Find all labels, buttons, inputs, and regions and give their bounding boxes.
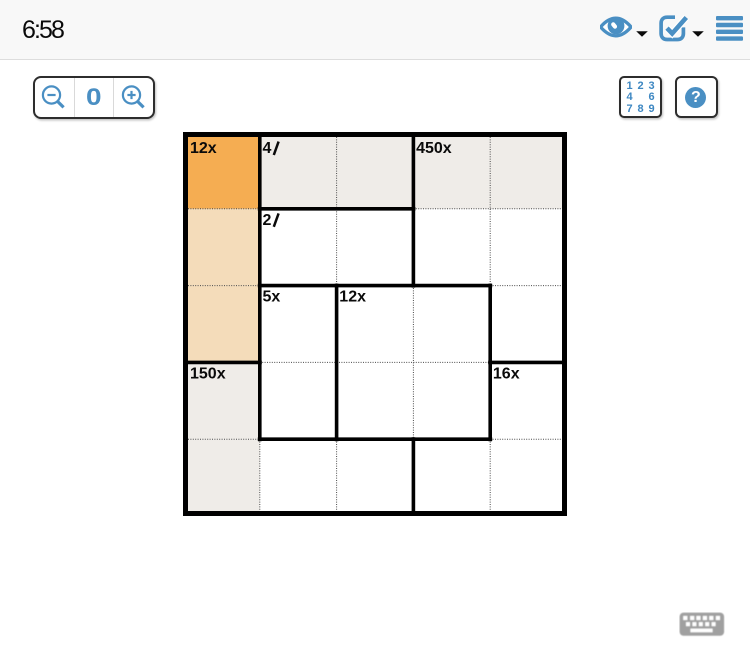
svg-text:450x: 450x: [416, 140, 452, 157]
svg-text:12x: 12x: [339, 289, 366, 306]
svg-text:5x: 5x: [263, 289, 281, 306]
svg-text:150x: 150x: [190, 365, 226, 382]
svg-text:4: 4: [263, 140, 272, 157]
svg-text:2: 2: [263, 212, 272, 229]
svg-text:16x: 16x: [493, 365, 520, 382]
svg-text:12x: 12x: [190, 140, 217, 157]
